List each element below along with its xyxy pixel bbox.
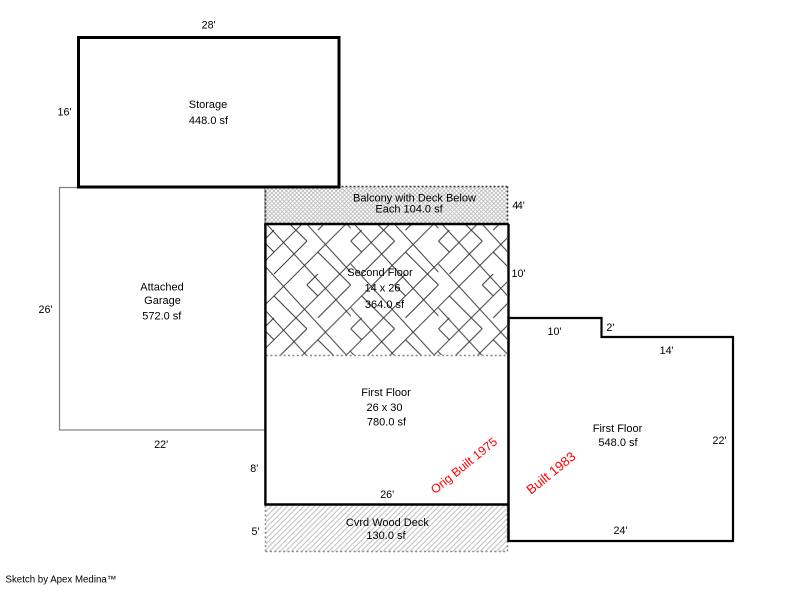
svg-text:22': 22' (713, 435, 727, 447)
svg-text:14 x 26: 14 x 26 (364, 283, 400, 295)
svg-text:26 x 30: 26 x 30 (366, 402, 402, 414)
svg-text:Each 104.0 sf: Each 104.0 sf (375, 203, 443, 215)
svg-text:130.0 sf: 130.0 sf (366, 530, 406, 542)
svg-text:Sketch by Apex Medina™: Sketch by Apex Medina™ (6, 575, 117, 586)
svg-text:364.0 sf: 364.0 sf (365, 299, 405, 311)
svg-text:Storage: Storage (189, 99, 228, 111)
svg-text:26': 26' (380, 489, 394, 501)
svg-text:Attached: Attached (140, 281, 183, 293)
svg-text:2': 2' (606, 322, 614, 334)
svg-text:First Floor: First Floor (593, 423, 643, 435)
svg-text:24': 24' (614, 525, 628, 537)
svg-text:10': 10' (512, 268, 526, 280)
svg-text:Second Floor: Second Floor (347, 267, 413, 279)
svg-text:448.0 sf: 448.0 sf (189, 115, 229, 127)
svg-text:28': 28' (202, 20, 216, 32)
svg-text:548.0 sf: 548.0 sf (598, 437, 638, 449)
svg-text:10': 10' (548, 326, 562, 338)
svg-text:26': 26' (39, 304, 53, 316)
svg-text:5': 5' (252, 526, 260, 538)
svg-text:780.0 sf: 780.0 sf (367, 417, 407, 429)
svg-text:16': 16' (58, 107, 72, 119)
svg-text:Orig Built 1975: Orig Built 1975 (428, 435, 500, 497)
svg-text:8': 8' (250, 463, 258, 475)
svg-text:First Floor: First Floor (361, 387, 411, 399)
svg-text:Cvrd Wood Deck: Cvrd Wood Deck (346, 517, 429, 529)
svg-text:572.0 sf: 572.0 sf (142, 311, 182, 323)
svg-text:14': 14' (660, 345, 674, 357)
svg-text:Garage: Garage (144, 295, 181, 307)
svg-text:22': 22' (154, 439, 168, 451)
svg-text:44': 44' (512, 200, 524, 212)
